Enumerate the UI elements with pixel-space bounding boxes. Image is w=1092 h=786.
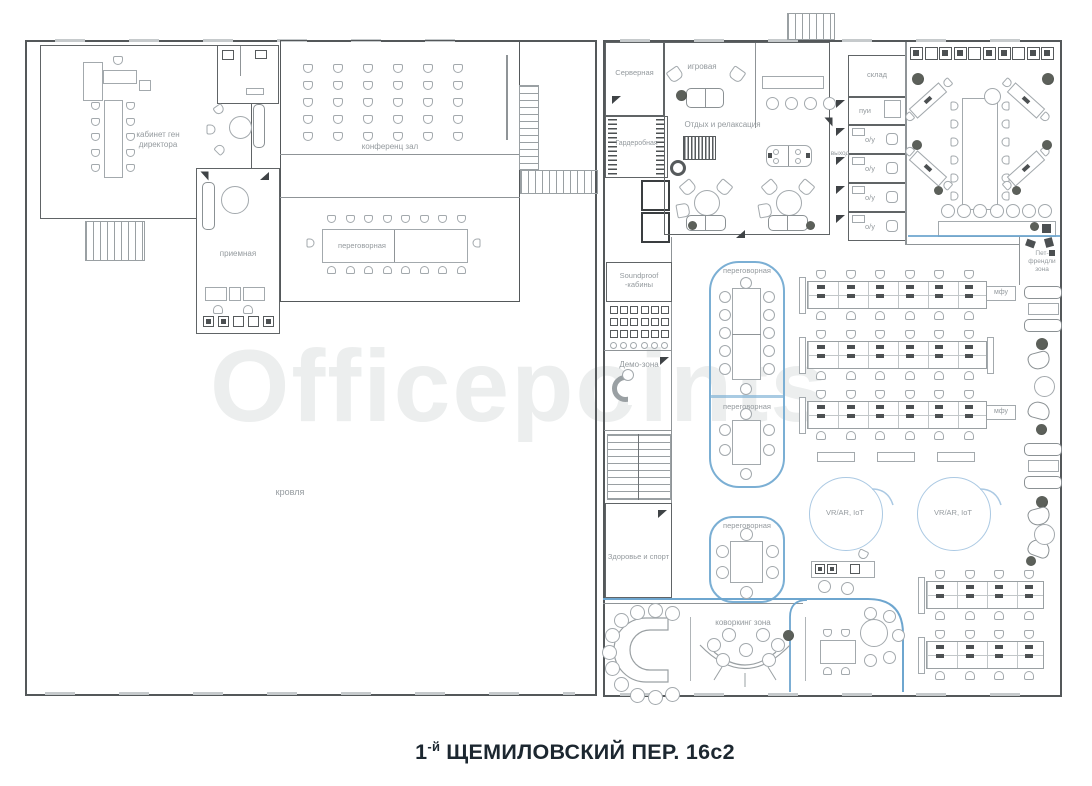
floor-plan-canvas: Officepoints кабинет ген директора прием… xyxy=(0,0,1092,786)
monitor-icon xyxy=(876,414,884,418)
tv-console-icon xyxy=(762,76,824,89)
chair-icon xyxy=(994,611,1004,620)
monitor-icon xyxy=(847,405,855,409)
door-icon xyxy=(836,128,845,136)
title-text: ЩЕМИЛОВСКИЙ ПЕР. 16с2 xyxy=(446,740,735,764)
chair-icon xyxy=(905,270,915,279)
sink-icon xyxy=(222,50,234,60)
chair-icon xyxy=(457,266,466,274)
monitor-icon xyxy=(965,294,973,298)
stool-icon xyxy=(651,342,658,349)
monitor-icon xyxy=(966,645,974,649)
stairs-icon xyxy=(519,85,539,170)
bar-stool-icon xyxy=(1022,204,1036,218)
privacy-screen-icon xyxy=(799,277,806,314)
bench-desk-icon xyxy=(807,341,987,369)
chair-icon xyxy=(846,431,856,440)
monitor-icon xyxy=(936,585,944,589)
appliance-glyph xyxy=(1001,50,1007,56)
table-icon xyxy=(229,287,241,301)
privacy-screen-icon xyxy=(799,397,806,434)
round-table-icon xyxy=(1034,376,1055,397)
monitor-icon xyxy=(966,594,974,598)
monitor-icon xyxy=(876,405,884,409)
chair-icon xyxy=(965,671,975,680)
room-label-server: Серверная xyxy=(605,68,664,77)
locker-icon xyxy=(620,306,628,314)
air-hockey-dot xyxy=(795,149,801,155)
chair-icon xyxy=(846,390,856,399)
locker-icon xyxy=(610,318,618,326)
door-icon xyxy=(612,96,621,104)
stool-icon xyxy=(605,661,620,676)
chair-icon xyxy=(965,611,975,620)
monitor-icon xyxy=(1025,654,1033,658)
bench-desk-icon xyxy=(807,281,987,309)
air-hockey-knob xyxy=(806,153,810,158)
chair-icon xyxy=(716,545,729,558)
monitor-icon xyxy=(1025,594,1033,598)
chair-icon xyxy=(1024,671,1034,680)
stool-icon xyxy=(883,651,896,664)
sofa-icon xyxy=(1024,319,1062,332)
icon-glyph xyxy=(206,319,211,324)
plant-icon xyxy=(1030,222,1039,231)
monitor-icon xyxy=(817,405,825,409)
room-label-roof: кровля xyxy=(245,487,335,498)
monitor-icon xyxy=(847,285,855,289)
locker-icon xyxy=(641,318,649,326)
room-label-pet-zone: Пет-френдли зона xyxy=(1022,250,1062,274)
table-icon xyxy=(205,287,227,301)
label-vr-zone: VR/AR, IoT xyxy=(809,508,881,517)
air-hockey-dot xyxy=(773,158,779,164)
stairs-icon xyxy=(85,221,145,261)
plant-icon xyxy=(1036,424,1047,435)
title-superscript: -й xyxy=(427,739,440,754)
chair-icon xyxy=(740,383,752,395)
monitor-icon xyxy=(906,405,914,409)
desk-icon xyxy=(103,70,137,84)
room-label-reception: приемная xyxy=(198,249,278,259)
wall-line xyxy=(905,42,907,245)
stool-icon xyxy=(762,653,776,667)
chair-icon xyxy=(846,311,856,320)
icon-square xyxy=(233,316,244,327)
appliance-icon xyxy=(1012,47,1025,60)
stool-icon xyxy=(605,628,620,643)
locker-icon xyxy=(651,306,659,314)
chair-icon xyxy=(719,424,731,436)
plant-icon xyxy=(912,140,922,150)
stool-icon xyxy=(614,613,629,628)
plant-icon xyxy=(1026,556,1036,566)
sofa-icon xyxy=(1024,476,1062,489)
locker-icon xyxy=(651,330,659,338)
monitor-icon xyxy=(906,414,914,418)
air-hockey-knob xyxy=(768,153,772,158)
locker-icon xyxy=(661,306,669,314)
chair-icon xyxy=(420,215,429,223)
sink-icon xyxy=(852,186,865,194)
chair-icon xyxy=(846,330,856,339)
chair-icon xyxy=(457,215,466,223)
chair-icon xyxy=(719,444,731,456)
monitor-icon xyxy=(995,585,1003,589)
room-label-conference-hall: конференц зал xyxy=(330,142,450,152)
bar-stool-icon xyxy=(941,204,955,218)
foosball-table-icon xyxy=(683,136,716,160)
monitor-icon xyxy=(936,654,944,658)
chair-icon xyxy=(816,371,826,380)
chair-icon xyxy=(816,431,826,440)
chair-icon xyxy=(91,149,100,157)
chair-icon xyxy=(346,266,355,274)
sink-icon xyxy=(884,100,901,118)
wall-line xyxy=(280,154,520,155)
plant-icon xyxy=(912,73,924,85)
chair-icon xyxy=(243,305,253,314)
locker-icon xyxy=(641,330,649,338)
plant-icon xyxy=(676,90,687,101)
appliance-glyph xyxy=(913,50,919,56)
appliance-icon xyxy=(1042,224,1051,233)
wall-line xyxy=(1019,237,1020,285)
sofa-icon xyxy=(202,182,215,230)
toilet-icon xyxy=(255,50,267,59)
door-icon xyxy=(825,118,833,127)
room-label-storage: склад xyxy=(848,70,906,79)
locker-icon xyxy=(620,318,628,326)
chair-icon xyxy=(875,371,885,380)
stool-icon xyxy=(785,97,798,110)
monitor-icon xyxy=(965,345,973,349)
kitchen-table-icon xyxy=(962,98,998,210)
chair-icon xyxy=(875,431,885,440)
table-icon xyxy=(1028,303,1059,315)
stool-icon xyxy=(739,643,753,657)
room-label-soundproof: Soundproof -кабины xyxy=(606,271,672,290)
chair-icon xyxy=(1002,120,1010,129)
plant-icon xyxy=(1036,338,1048,350)
appliance-icon xyxy=(925,47,938,60)
stool-icon xyxy=(864,607,877,620)
door-icon xyxy=(660,357,669,365)
locker-icon xyxy=(651,318,659,326)
table-icon xyxy=(817,452,855,462)
appliance-icon xyxy=(968,47,981,60)
chair-icon xyxy=(934,371,944,380)
table-icon xyxy=(937,452,975,462)
stool-icon xyxy=(771,638,785,652)
monitor-icon xyxy=(935,294,943,298)
monitor-icon xyxy=(966,654,974,658)
sofa-divider xyxy=(705,89,706,107)
chair-icon xyxy=(766,566,779,579)
chair-icon xyxy=(740,408,752,420)
plant-icon xyxy=(688,221,697,230)
stool-icon xyxy=(892,629,905,642)
wall-line xyxy=(604,350,672,351)
locker-icon xyxy=(641,306,649,314)
stool-icon xyxy=(823,97,836,110)
door-icon xyxy=(201,172,209,181)
toilet-icon xyxy=(886,133,898,145)
plant-icon xyxy=(783,630,794,641)
chair-icon xyxy=(905,371,915,380)
sofa-icon xyxy=(768,215,808,231)
icon-square xyxy=(248,316,259,327)
monitor-icon xyxy=(935,354,943,358)
stool-icon xyxy=(610,342,617,349)
desk-icon xyxy=(83,62,103,101)
table-icon xyxy=(243,287,265,301)
locker-icon xyxy=(620,330,628,338)
bar-stool-icon xyxy=(990,204,1004,218)
chair-icon xyxy=(934,431,944,440)
window-ticks xyxy=(45,692,575,695)
round-table-icon xyxy=(1034,524,1055,545)
table-icon xyxy=(877,452,915,462)
stool-icon xyxy=(648,690,663,705)
sofa-divider xyxy=(787,216,788,230)
locker-icon xyxy=(610,330,618,338)
chair-icon xyxy=(846,371,856,380)
monitor-icon xyxy=(906,294,914,298)
locker-icon xyxy=(630,318,638,326)
chair-icon xyxy=(964,371,974,380)
chair-icon xyxy=(327,266,336,274)
monitor-icon xyxy=(1025,585,1033,589)
wall-line xyxy=(604,430,672,431)
chair-icon xyxy=(905,390,915,399)
monitor-icon xyxy=(995,654,1003,658)
wall-line xyxy=(905,244,1020,245)
stool-icon xyxy=(602,645,617,660)
stool-icon xyxy=(665,687,680,702)
chair-icon xyxy=(1024,611,1034,620)
plant-icon xyxy=(1042,140,1052,150)
table-divider xyxy=(732,334,761,335)
window-ticks xyxy=(620,693,1040,696)
stool-icon xyxy=(661,342,668,349)
round-table-icon xyxy=(776,190,802,216)
toilet-icon xyxy=(886,220,898,232)
monitor-icon xyxy=(817,354,825,358)
chair-icon xyxy=(763,444,775,456)
privacy-screen-icon xyxy=(799,337,806,374)
meeting-table-icon xyxy=(732,420,761,465)
monitor-icon xyxy=(847,345,855,349)
table-icon xyxy=(820,640,856,664)
sofa-divider xyxy=(705,216,706,230)
door-icon xyxy=(836,215,845,223)
chair-icon xyxy=(875,311,885,320)
equipment-glyph xyxy=(830,567,834,571)
chair-icon xyxy=(763,291,775,303)
chair-icon xyxy=(965,630,975,639)
chair-icon xyxy=(719,345,731,357)
chair-icon xyxy=(1002,138,1010,147)
chair-icon xyxy=(719,291,731,303)
door-icon xyxy=(260,172,269,180)
chair-icon xyxy=(935,671,945,680)
appliance-glyph xyxy=(986,50,992,56)
door-icon xyxy=(658,510,667,518)
locker-icon xyxy=(661,318,669,326)
wall-line xyxy=(755,43,756,128)
chair-icon xyxy=(965,570,975,579)
sink-icon xyxy=(852,157,865,165)
monitor-icon xyxy=(876,345,884,349)
chair-icon xyxy=(763,363,775,375)
chair-icon xyxy=(420,266,429,274)
appliance-glyph xyxy=(942,50,948,56)
pet-icon xyxy=(1049,250,1055,256)
stool-icon xyxy=(641,342,648,349)
sink-icon xyxy=(852,128,865,136)
chair-icon xyxy=(364,266,373,274)
chair-icon xyxy=(716,566,729,579)
round-table-icon xyxy=(694,190,720,216)
chair-icon xyxy=(1002,102,1010,111)
monitor-icon xyxy=(876,294,884,298)
stool-icon xyxy=(722,628,736,642)
bar-stool-icon xyxy=(1006,204,1020,218)
monitor-icon xyxy=(936,645,944,649)
stool-icon xyxy=(766,97,779,110)
appliance-glyph xyxy=(1030,50,1036,56)
monitor-icon xyxy=(935,345,943,349)
stool-icon xyxy=(630,605,645,620)
room-label-relax: Отдых и релаксация xyxy=(665,120,780,130)
meeting-table-icon xyxy=(104,100,123,178)
tire-seat-icon xyxy=(670,160,686,176)
privacy-screen-icon xyxy=(918,637,925,674)
air-hockey-dot xyxy=(773,149,779,155)
chair-icon xyxy=(383,266,392,274)
sink-icon xyxy=(852,215,865,223)
toilet-icon xyxy=(886,162,898,174)
stool-icon xyxy=(804,97,817,110)
chair-icon xyxy=(766,545,779,558)
equipment-glyph xyxy=(818,567,822,571)
room-server xyxy=(605,42,664,116)
chair-icon xyxy=(964,311,974,320)
chair-icon xyxy=(823,667,832,675)
air-hockey-dot xyxy=(795,158,801,164)
chair-icon xyxy=(126,149,135,157)
chair-icon xyxy=(740,586,753,599)
monitor-icon xyxy=(817,414,825,418)
chair-icon xyxy=(1024,570,1034,579)
toilet-icon xyxy=(886,191,898,203)
chair-icon xyxy=(1002,192,1010,201)
room-label-cleaning: пуи xyxy=(850,106,880,115)
chair-icon xyxy=(994,671,1004,680)
door-icon xyxy=(836,157,845,165)
privacy-screen-icon xyxy=(918,577,925,614)
monitor-icon xyxy=(966,585,974,589)
chair-icon xyxy=(841,667,850,675)
stool-icon xyxy=(614,677,629,692)
bench-icon xyxy=(246,88,264,95)
room-label-wardrobe: Гардеробная xyxy=(603,140,670,149)
round-table-icon xyxy=(229,116,252,139)
locker-icon xyxy=(630,330,638,338)
monitor-icon xyxy=(906,345,914,349)
table-icon xyxy=(1028,460,1059,472)
chair-icon xyxy=(401,266,410,274)
sink-icon xyxy=(984,88,1001,105)
monitor-icon xyxy=(906,285,914,289)
plant-icon xyxy=(806,221,815,230)
monitor-icon xyxy=(847,414,855,418)
divider-screen xyxy=(690,617,691,681)
room-label-coworking: коворкинг зона xyxy=(695,618,791,628)
air-hockey-line xyxy=(788,146,789,166)
room-label-director-office: кабинет ген директора xyxy=(128,130,188,150)
label-vr-zone: VR/AR, IoT xyxy=(917,508,989,517)
monitor-icon xyxy=(936,594,944,598)
monitor-icon xyxy=(965,414,973,418)
room-label-meeting-left: переговорная xyxy=(326,241,398,250)
label-printer: мфу xyxy=(986,408,1016,417)
sofa-icon xyxy=(1024,286,1062,299)
round-table-icon xyxy=(221,186,249,214)
chair-icon xyxy=(126,118,135,126)
locker-icon xyxy=(630,306,638,314)
chair-icon xyxy=(934,311,944,320)
chair-icon xyxy=(473,239,481,248)
chair-icon xyxy=(935,611,945,620)
wall-line xyxy=(603,603,803,604)
wall-line xyxy=(280,197,520,198)
presentation-screen-icon xyxy=(506,55,508,140)
round-table-icon xyxy=(860,619,888,647)
chair-icon xyxy=(438,266,447,274)
round-table-icon xyxy=(622,369,634,381)
monitor-icon xyxy=(965,285,973,289)
divider-screen xyxy=(805,617,806,681)
chair-icon xyxy=(905,311,915,320)
label-printer: мфу xyxy=(986,289,1016,298)
monitor-icon xyxy=(906,354,914,358)
door-icon xyxy=(836,186,845,194)
stair-rail xyxy=(638,434,639,500)
stool-icon xyxy=(841,582,854,595)
wall-line xyxy=(240,46,241,76)
chair-icon xyxy=(763,345,775,357)
bench-desk-icon xyxy=(807,401,987,429)
exterior-stairs-icon xyxy=(787,13,835,40)
title-number: 1 xyxy=(415,740,427,764)
monitor-icon xyxy=(965,354,973,358)
table-icon xyxy=(139,80,151,91)
chair-icon xyxy=(846,270,856,279)
door-icon xyxy=(736,230,745,238)
stool-icon xyxy=(716,653,730,667)
chair-icon xyxy=(763,327,775,339)
chair-icon xyxy=(346,215,355,223)
appliance-glyph xyxy=(957,50,963,56)
chair-icon xyxy=(1002,156,1010,165)
monitor-icon xyxy=(995,594,1003,598)
monitor-icon xyxy=(876,354,884,358)
chair-icon xyxy=(719,309,731,321)
appliance-glyph xyxy=(1044,50,1050,56)
monitor-icon xyxy=(935,414,943,418)
